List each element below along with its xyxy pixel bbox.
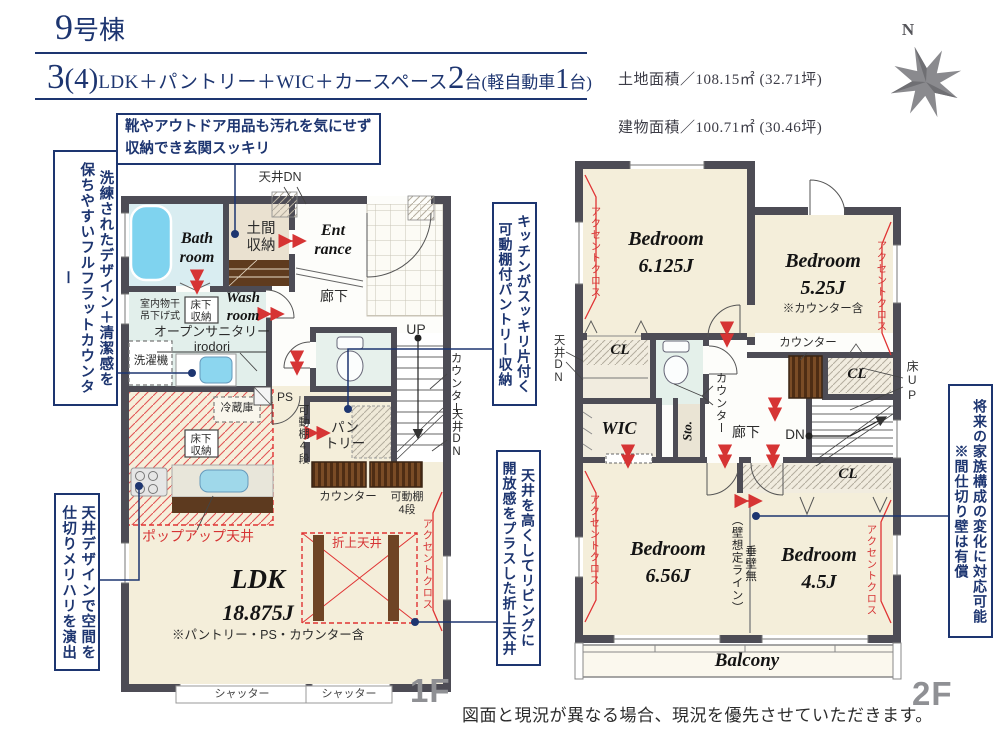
label-stairs-up: UP [406, 321, 425, 338]
building-suffix: 号棟 [73, 16, 125, 45]
label-balcony: Balcony [715, 650, 779, 672]
page-title: 9号棟 [55, 6, 125, 48]
label-bedroom1: Bedroom 6.125J [628, 226, 704, 280]
building-area: 建物面積／100.71㎡ (30.46坪) [618, 116, 822, 140]
label-closet-2: CL [847, 366, 866, 384]
label-no-hanging-wall-line2: （壁想定ライン） [729, 514, 743, 614]
area-info: 土地面積／108.15㎡ (32.71坪) 建物面積／100.71㎡ (30.4… [618, 44, 822, 164]
callout-genkan: 靴やアウトドア用品も汚れを気にせず 収納でき玄関スッキリ [116, 113, 381, 165]
label-accent-cloth-2f-1: アクセントクロス [589, 206, 601, 298]
label-washing-machine: 洗濯機 [134, 355, 169, 369]
callout-genkan-line1: 靴やアウトドア用品も汚れを気にせず [125, 117, 372, 139]
label-no-hanging-wall: 垂壁無 （壁想定ライン） [729, 514, 756, 614]
label-stairs-dn: DN [785, 427, 805, 443]
floorplan-sheet: 9号棟 3 (4) LDK＋パントリー＋WIC＋カースペース 2 台 (軽自動車… [0, 0, 1000, 749]
label-no-hanging-wall-line1: 垂壁無 [743, 514, 757, 614]
plan-kei-post: 台) [569, 68, 592, 93]
label-counter-2f-top: カウンター [779, 337, 837, 351]
label-shelf-right: 可動棚 4段 [391, 491, 424, 517]
label-shutter-1: シャッター [215, 688, 270, 701]
land-area: 土地面積／108.15㎡ (32.71坪) [618, 68, 822, 92]
label-accent-cloth-1f: アクセントクロス [421, 518, 433, 610]
plan-car-count: 2 [448, 60, 465, 97]
label-shutter-2: シャッター [322, 688, 377, 701]
label-1f-ceiling-dn-top: 天井DN [258, 170, 301, 185]
label-underfloor-storage-2: 床下 収納 [191, 433, 212, 458]
plan-kei-pre: (軽自動車 [482, 68, 556, 93]
label-ceiling-dn-stairs: 天井DN [449, 408, 463, 459]
label-1f-hallway: 廊下 [320, 288, 348, 305]
plan-kei-count: 1 [555, 64, 569, 96]
callout-pantry: キッチンがスッキリ片付く 可動棚付パントリー収納 [492, 202, 537, 406]
plan-ldk-count: 3 [47, 57, 65, 97]
label-bedroom2-note: ※カウンター含 [783, 303, 864, 317]
callout-flat-counter: 洗練されたデザイン＋清潔感を 保ちやすいフルフラットカウンター [53, 150, 118, 406]
disclaimer-text: 図面と現況が異なる場合、現況を優先させていただきます。 [462, 706, 933, 726]
label-ldk: LDK [231, 564, 285, 596]
label-oriage-ceiling: 折上天井 [332, 536, 382, 551]
plan-car-unit: 台 [465, 68, 482, 93]
label-closet-1: CL [610, 342, 629, 360]
label-doma-storage: 土間 収納 [247, 221, 276, 255]
callout-oriage: 天井を高くしてリビングに 開放感をプラスした折上天井 [496, 450, 541, 666]
callout-oriage-line2: 開放感をプラスした折上天井 [500, 455, 518, 661]
header-rule-top [35, 52, 587, 54]
label-bath-room: Bath room [180, 230, 215, 268]
label-wash-room: Wash room [226, 290, 260, 325]
plan-rooms-text: LDK＋パントリー＋WIC＋カースペース [98, 67, 448, 94]
label-indoor-drying: 室内物干 吊下げ式 [140, 299, 180, 323]
label-pipe-space: PS [277, 390, 293, 404]
label-bedroom4: Bedroom 4.5J [781, 542, 857, 596]
label-storage: Sto. [681, 421, 696, 441]
label-pantry: パン トリー [325, 420, 366, 452]
callout-ceiling-design-line2: 仕切りメリハリを演出 [58, 498, 77, 666]
callout-pantry-line1: キッチンがスッキリ片付く [514, 207, 532, 401]
label-accent-cloth-2f-4: アクセントクロス [865, 524, 877, 616]
label-shelf-left: 可動棚4段 [296, 404, 309, 465]
plan-summary: 3 (4) LDK＋パントリー＋WIC＋カースペース 2 台 (軽自動車 1 台… [47, 57, 592, 97]
compass-north-label: N [902, 20, 914, 40]
label-popup-ceiling: ポップアップ天井 [142, 528, 254, 545]
callout-genkan-line2: 収納でき玄関スッキリ [125, 139, 372, 161]
callout-flat-counter-line1: 洗練されたデザイン＋清潔感を [95, 155, 114, 401]
label-closet-3: CL [838, 466, 857, 484]
callout-partition: 将来の家族構成の変化に対応可能 ※間仕切り壁は有償 [948, 384, 993, 638]
label-refrigerator: 冷蔵庫 [221, 402, 254, 415]
label-counter-stairs: カウンター [448, 352, 462, 415]
label-counter-2f-toilet: カウンター [713, 372, 727, 435]
building-number: 9 [55, 7, 73, 47]
label-floor-up: 床UP [905, 360, 919, 403]
compass-icon [879, 35, 972, 128]
label-entrance: Ent rance [314, 222, 351, 260]
label-accent-cloth-2f-3: アクセントクロス [588, 494, 600, 586]
label-accent-cloth-2f-2: アクセントクロス [875, 240, 887, 332]
label-bedroom2: Bedroom 5.25J [785, 248, 861, 302]
floor1-label: 1F [410, 672, 451, 711]
label-open-sanitary: オープンサニタリー irodori [154, 324, 270, 355]
callout-partition-line1: 将来の家族構成の変化に対応可能 [970, 389, 988, 633]
callout-oriage-line1: 天井を高くしてリビングに [518, 455, 536, 661]
header-rule-bottom [35, 98, 587, 100]
callout-partition-line2: ※間仕切り壁は有償 [952, 389, 970, 633]
label-ldk-size: 18.875J [222, 600, 294, 626]
label-bedroom3: Bedroom 6.56J [630, 536, 706, 590]
callout-flat-counter-line2: 保ちやすいフルフラットカウンター [57, 155, 95, 401]
callout-ceiling-design-line1: 天井デザインで空間を [77, 498, 96, 666]
label-wic: WIC [601, 418, 636, 439]
plan-ldk-paren: (4) [65, 63, 99, 96]
label-underfloor-storage-1: 床下 収納 [191, 299, 212, 324]
label-2f-ceiling-dn: 天井DN [551, 334, 565, 385]
label-ldk-note: ※パントリー・PS・カウンター含 [172, 628, 364, 643]
callout-ceiling-design: 天井デザインで空間を 仕切りメリハリを演出 [54, 493, 100, 671]
label-2f-hallway: 廊下 [732, 424, 760, 441]
callout-pantry-line2: 可動棚付パントリー収納 [496, 207, 514, 401]
label-counter-1f: カウンター [319, 491, 377, 505]
